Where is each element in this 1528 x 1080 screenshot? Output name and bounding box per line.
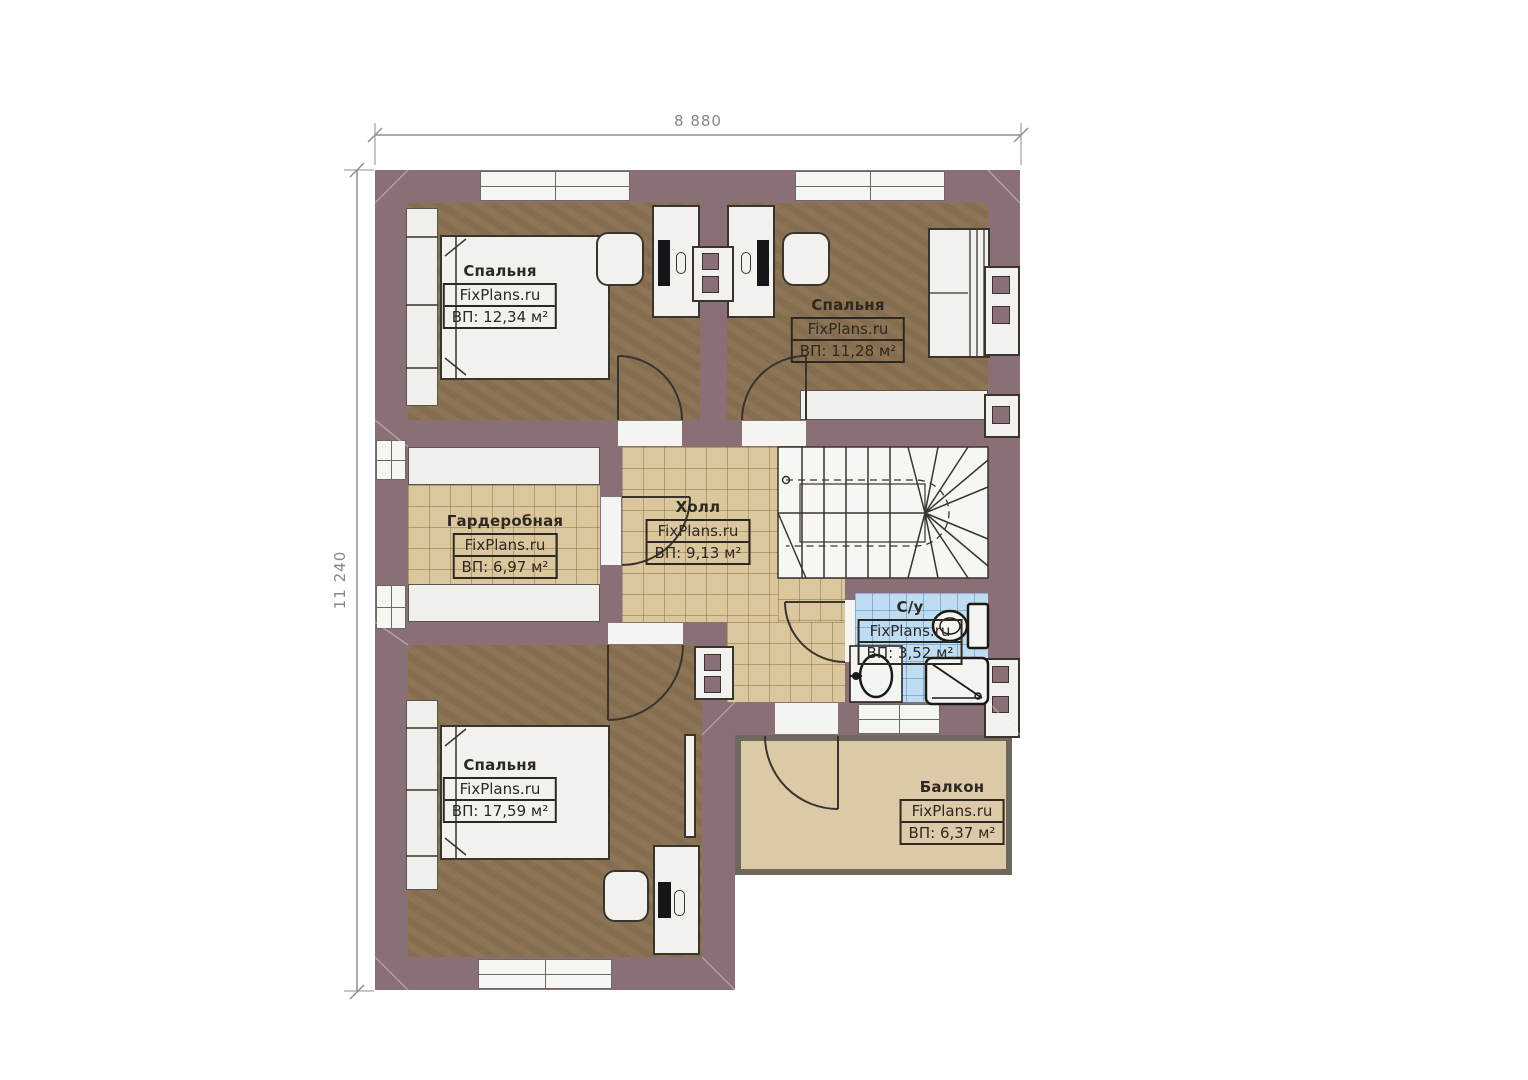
wall-unit-square	[992, 406, 1010, 424]
room-label-bedroom3: Спальня FixPlans.ru ВП: 17,59 м²	[443, 756, 557, 823]
floor-hall-passage	[778, 578, 845, 622]
window-bottom-bedroom3	[478, 959, 612, 989]
shelf-square	[704, 654, 721, 671]
room-area: ВП: 17,59 м²	[445, 799, 555, 821]
sofa-bedroom2	[928, 228, 990, 358]
room-name: Балкон	[920, 778, 985, 796]
room-label-bathroom: С/у FixPlans.ru ВП: 3,52 м²	[858, 598, 963, 665]
mirror-bedroom3	[684, 734, 696, 838]
room-label-bedroom1: Спальня FixPlans.ru ВП: 12,34 м²	[443, 262, 557, 329]
chair-bedroom1	[596, 232, 644, 286]
room-name: Спальня	[811, 296, 884, 314]
window-top-bedroom1	[480, 171, 630, 201]
floor-plan-canvas: Спальня FixPlans.ru ВП: 12,34 м² Спальня…	[0, 0, 1528, 1080]
shelf-square	[702, 276, 719, 293]
shelf-square	[704, 676, 721, 693]
room-area: ВП: 9,13 м²	[648, 541, 749, 563]
room-info-box: FixPlans.ru ВП: 12,34 м²	[443, 283, 557, 329]
closet-wardrobe-bottom	[408, 584, 600, 622]
closet-bedroom2	[800, 390, 988, 420]
window-left-lower	[376, 585, 406, 629]
door-opening-bedroom1	[618, 421, 682, 446]
door-opening-wardrobe	[601, 497, 621, 565]
wardrobe-strip-bedroom3	[406, 700, 438, 890]
room-info-box: FixPlans.ru ВП: 9,13 м²	[646, 519, 751, 565]
shelf-square	[702, 253, 719, 270]
door-opening-balcony	[775, 703, 838, 734]
door-opening-bedroom2	[742, 421, 806, 446]
room-label-hall: Холл FixPlans.ru ВП: 9,13 м²	[646, 498, 751, 565]
floor-hall-lower	[727, 622, 845, 702]
keyboard-bedroom2	[741, 252, 751, 274]
room-area: ВП: 6,97 м²	[455, 555, 556, 577]
monitor-bedroom2	[757, 240, 769, 286]
keyboard-bedroom3	[674, 890, 685, 916]
monitor-bedroom3	[658, 882, 671, 918]
watermark-text: FixPlans.ru	[902, 801, 1003, 821]
room-label-bedroom2: Спальня FixPlans.ru ВП: 11,28 м²	[791, 296, 905, 363]
chair-bedroom2	[782, 232, 830, 286]
room-name: Спальня	[463, 262, 536, 280]
room-info-box: FixPlans.ru ВП: 3,52 м²	[858, 619, 963, 665]
room-info-box: FixPlans.ru ВП: 6,37 м²	[900, 799, 1005, 845]
watermark-text: FixPlans.ru	[793, 319, 903, 339]
room-area: ВП: 12,34 м²	[445, 305, 555, 327]
dimension-width-label: 8 880	[669, 112, 727, 130]
room-area: ВП: 11,28 м²	[793, 339, 903, 361]
wardrobe-strip-bedroom1	[406, 208, 438, 406]
watermark-text: FixPlans.ru	[445, 285, 555, 305]
window-balcony	[858, 704, 940, 734]
keyboard-bedroom1	[676, 252, 686, 274]
room-name: Гардеробная	[447, 512, 564, 530]
door-opening-bathroom	[845, 600, 855, 662]
room-info-box: FixPlans.ru ВП: 11,28 м²	[791, 317, 905, 363]
watermark-text: FixPlans.ru	[445, 779, 555, 799]
watermark-text: FixPlans.ru	[455, 535, 556, 555]
watermark-text: FixPlans.ru	[860, 621, 961, 641]
monitor-bedroom1	[658, 240, 670, 286]
door-opening-bedroom3	[608, 623, 683, 644]
wall-unit-square	[992, 696, 1009, 713]
room-area: ВП: 3,52 м²	[860, 641, 961, 663]
window-left-upper	[376, 440, 406, 480]
room-name: Спальня	[463, 756, 536, 774]
chair-bedroom3	[603, 870, 649, 922]
window-top-bedroom2	[795, 171, 945, 201]
room-info-box: FixPlans.ru ВП: 6,97 м²	[453, 533, 558, 579]
closet-wardrobe-top	[408, 447, 600, 485]
room-label-balcony: Балкон FixPlans.ru ВП: 6,37 м²	[900, 778, 1005, 845]
wall-unit-square	[992, 666, 1009, 683]
watermark-text: FixPlans.ru	[648, 521, 749, 541]
dimension-height-label: 11 240	[331, 546, 349, 615]
wall-unit-square	[992, 306, 1010, 324]
room-label-wardrobe: Гардеробная FixPlans.ru ВП: 6,97 м²	[447, 512, 564, 579]
room-area: ВП: 6,37 м²	[902, 821, 1003, 843]
wall-unit-square	[992, 276, 1010, 294]
room-info-box: FixPlans.ru ВП: 17,59 м²	[443, 777, 557, 823]
room-name: Холл	[676, 498, 721, 516]
room-name: С/у	[897, 598, 924, 616]
